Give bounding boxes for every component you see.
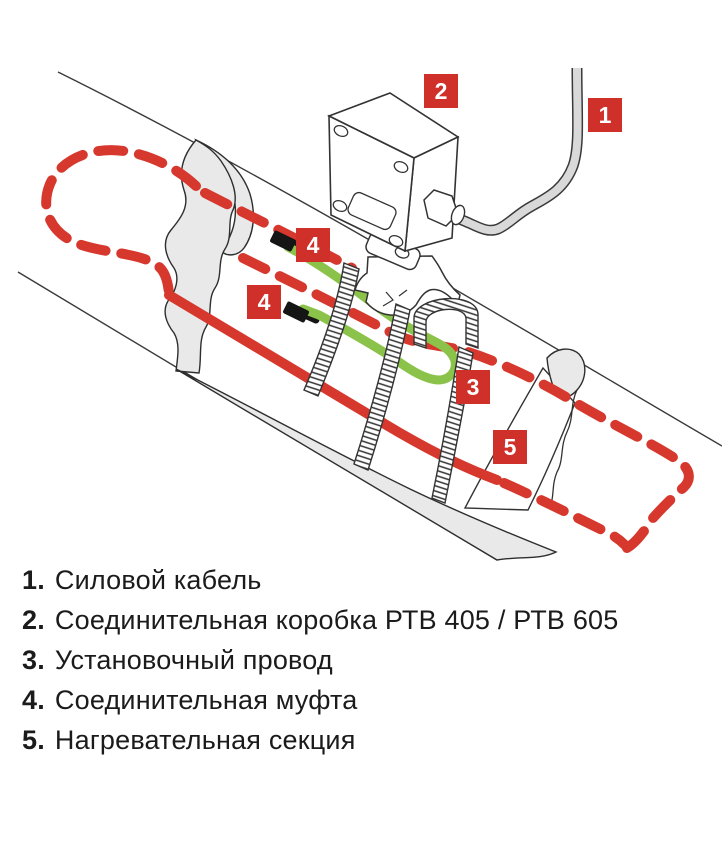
diagram-svg bbox=[0, 0, 722, 562]
badge-coupling-upper: 4 bbox=[296, 228, 330, 262]
coupling-lower bbox=[282, 301, 309, 323]
legend-item-heating-section: 5.Нагревательная секция bbox=[22, 720, 712, 760]
badge-coupling-lower: 4 bbox=[247, 285, 281, 319]
legend-item-installation-wire: 3.Установочный провод bbox=[22, 640, 712, 680]
cable-tie-arch-hatch bbox=[414, 299, 478, 348]
legend-number: 1. bbox=[22, 565, 45, 595]
power-cable-outline bbox=[457, 68, 578, 230]
heating-cable-left-loop bbox=[46, 150, 196, 294]
legend-label: Установочный провод bbox=[55, 645, 333, 675]
badge-heating-section: 5 bbox=[493, 430, 527, 464]
legend-label: Соединительная муфта bbox=[55, 685, 358, 715]
legend-label: Нагревательная секция bbox=[55, 725, 356, 755]
badge-junction-box: 2 bbox=[424, 74, 458, 108]
legend-item-junction-box: 2.Соединительная коробка РТВ 405 / РТВ 6… bbox=[22, 600, 712, 640]
legend-number: 3. bbox=[22, 645, 45, 675]
cable-tie-hatch bbox=[354, 304, 410, 470]
power-cable bbox=[457, 68, 578, 230]
legend: 1.Силовой кабель 2.Соединительная коробк… bbox=[22, 560, 712, 760]
heating-cable-right-tail bbox=[504, 483, 625, 545]
legend-number: 4. bbox=[22, 685, 45, 715]
junction-box bbox=[329, 93, 467, 251]
legend-number: 5. bbox=[22, 725, 45, 755]
badge-installation-wire: 3 bbox=[456, 370, 490, 404]
diagram-canvas: 1 2 4 4 3 5 bbox=[0, 0, 722, 562]
pipe-heating-installation-diagram: 1 2 4 4 3 5 1.Силовой кабель 2.Соедините… bbox=[0, 0, 722, 850]
legend-number: 2. bbox=[22, 605, 45, 635]
legend-label: Силовой кабель bbox=[55, 565, 262, 595]
legend-item-coupling: 4.Соединительная муфта bbox=[22, 680, 712, 720]
badge-power-cable: 1 bbox=[588, 98, 622, 132]
legend-item-power-cable: 1.Силовой кабель bbox=[22, 560, 712, 600]
legend-label: Соединительная коробка РТВ 405 / РТВ 605 bbox=[55, 605, 619, 635]
